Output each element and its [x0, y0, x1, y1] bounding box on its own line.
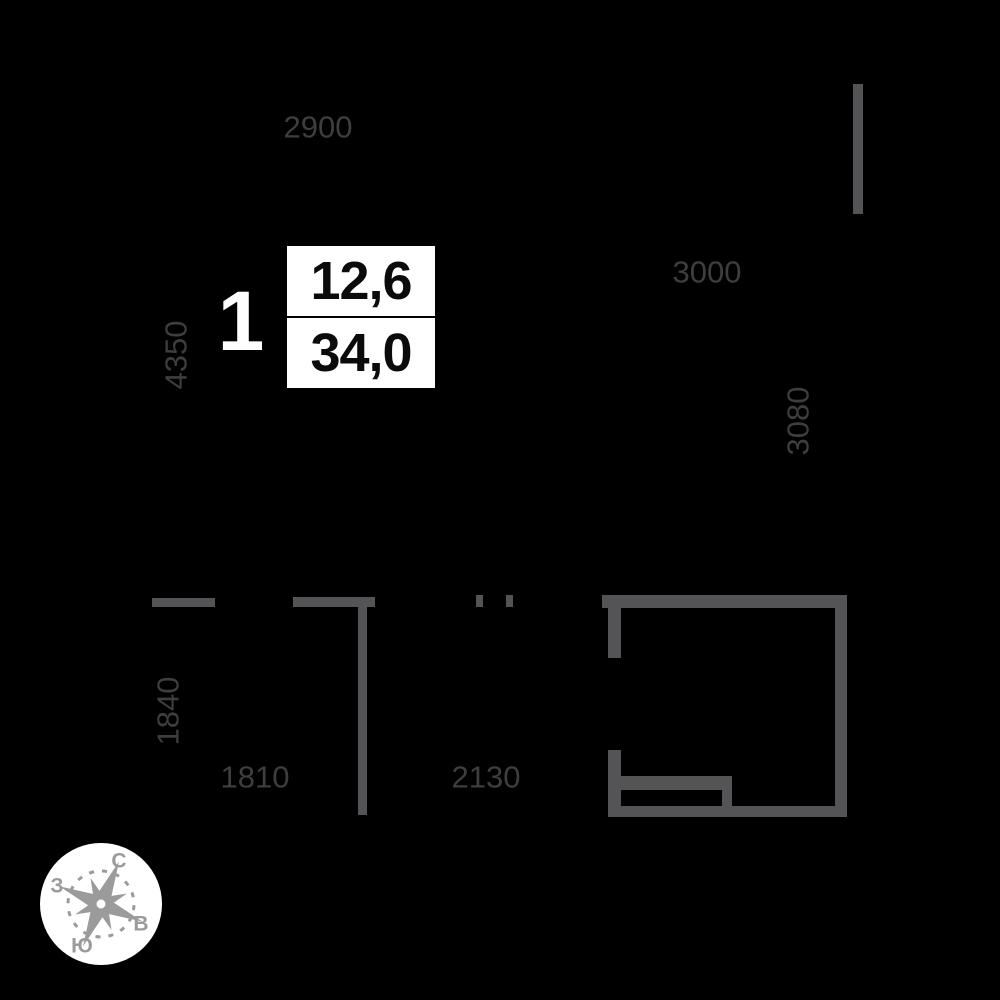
compass-west-label: З — [50, 875, 63, 898]
room-right-wall — [835, 595, 847, 817]
compass-south-label: Ю — [71, 935, 93, 958]
dimension-label-2900: 2900 — [284, 112, 353, 143]
room-interior-bar — [610, 776, 732, 790]
dimension-label-1810: 1810 — [221, 762, 290, 793]
room-top-wall — [602, 595, 847, 608]
dimension-label-4350: 4350 — [161, 321, 192, 390]
wall-hall-left-segment — [152, 598, 215, 607]
unit-area-badge[interactable]: 12,6 34,0 — [287, 246, 435, 388]
compass-rose-icon: С З В Ю — [36, 839, 166, 969]
wall-top-right-vertical — [853, 84, 863, 214]
room-interior-step — [722, 790, 732, 806]
dimension-label-3080: 3080 — [783, 387, 814, 456]
compass-east-label: В — [133, 913, 148, 936]
dimension-label-1840: 1840 — [153, 677, 184, 746]
wall-hall-mid-vertical — [358, 597, 367, 815]
compass-north-label: С — [111, 850, 126, 873]
room-bottom-wall — [608, 806, 847, 817]
dimension-label-3000: 3000 — [673, 257, 742, 288]
room-left-wall-upper — [608, 608, 621, 658]
wall-door-stub-left — [476, 595, 483, 607]
floor-plan-canvas: 2900 4350 3000 3080 1840 1810 2130 1 12,… — [0, 0, 1000, 1000]
unit-number-label: 1 — [218, 279, 265, 363]
unit-living-area-value: 12,6 — [287, 246, 435, 316]
dimension-label-2130: 2130 — [452, 762, 521, 793]
wall-door-stub-right — [506, 595, 513, 607]
unit-total-area-value: 34,0 — [287, 316, 435, 388]
